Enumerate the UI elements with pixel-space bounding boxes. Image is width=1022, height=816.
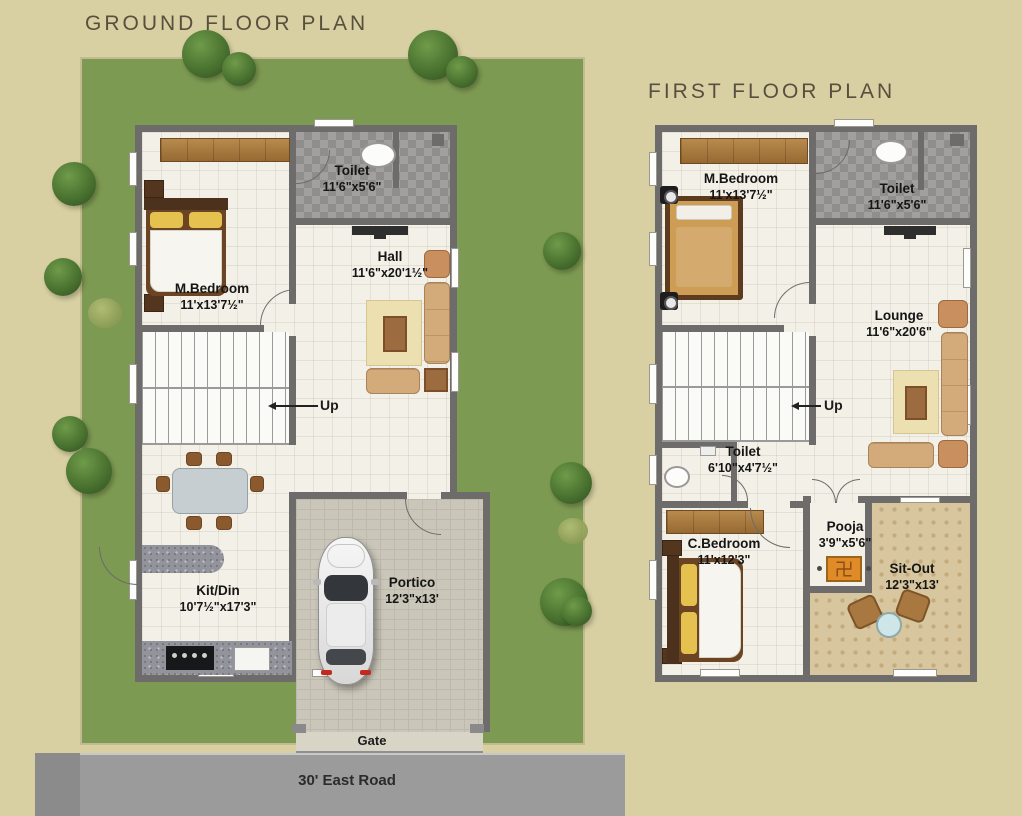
- stair-landing-line: [142, 387, 289, 389]
- wall: [816, 218, 970, 225]
- lamp-dot: [866, 566, 871, 571]
- up-arrow-line: [799, 405, 821, 407]
- bed: [665, 196, 743, 300]
- window: [834, 119, 874, 127]
- wall: [289, 132, 296, 304]
- wall: [858, 496, 872, 503]
- armchair: [938, 300, 968, 328]
- tree-icon: [550, 462, 592, 504]
- up-arrow-line: [276, 405, 318, 407]
- up-arrow-icon: [268, 402, 276, 410]
- floor-plan-canvas: GROUND FLOOR PLAN FIRST FLOOR PLAN: [0, 0, 1022, 816]
- tree-icon: [446, 56, 478, 88]
- room-label-sitout: Sit-Out 12'3"x13': [885, 561, 939, 594]
- window: [451, 352, 459, 392]
- wall: [289, 336, 296, 445]
- up-label: Up: [824, 397, 843, 413]
- window: [649, 560, 657, 600]
- driveway: [296, 732, 483, 753]
- tv-unit: [352, 226, 408, 235]
- armchair: [938, 440, 968, 468]
- lamp-dot: [817, 566, 822, 571]
- coffee-table: [905, 386, 927, 420]
- washbasin: [664, 466, 690, 488]
- tree-icon: [52, 416, 88, 452]
- dining-table: [172, 468, 248, 514]
- window: [649, 152, 657, 186]
- portico-side-wall: [483, 492, 490, 732]
- room-label-mbedroom: M.Bedroom 11'x13'7½": [704, 171, 778, 204]
- nightstand: [662, 540, 682, 556]
- tv-unit: [884, 226, 936, 235]
- swastika-icon: [826, 556, 862, 582]
- kitchen-counter: [142, 545, 224, 573]
- coffee-table: [383, 316, 407, 352]
- gate-post: [470, 724, 484, 733]
- tree-icon: [562, 596, 592, 626]
- side-table: [424, 368, 448, 392]
- gate-label: Gate: [358, 733, 387, 748]
- room-label-cbedroom: C.Bedroom 11'x12'3": [688, 536, 761, 569]
- bed: [667, 556, 747, 664]
- wall: [662, 501, 748, 508]
- wall: [809, 132, 816, 304]
- window: [129, 152, 137, 186]
- up-arrow-icon: [791, 402, 799, 410]
- window: [900, 497, 940, 503]
- stair-landing-line: [662, 386, 809, 388]
- dining-chair: [156, 476, 170, 492]
- car: [318, 537, 374, 685]
- sink: [234, 647, 270, 671]
- window: [700, 669, 740, 677]
- road-label: 30' East Road: [298, 772, 396, 789]
- tree-icon: [52, 162, 96, 206]
- road-culvert: [35, 753, 80, 816]
- tree-icon: [222, 52, 256, 86]
- sofa: [941, 332, 968, 436]
- stove: [166, 646, 214, 670]
- wall: [803, 496, 811, 503]
- window: [129, 232, 137, 266]
- window: [893, 669, 937, 677]
- room-label-portico: Portico 12'3"x13': [385, 575, 439, 608]
- wall: [289, 492, 407, 499]
- tree-icon: [543, 232, 581, 270]
- window: [451, 248, 459, 288]
- duct: [950, 134, 964, 146]
- wall: [662, 325, 784, 332]
- wardrobe: [160, 138, 290, 162]
- room-label-toilet2: Toilet 6'10"x4'7½": [708, 444, 778, 477]
- dining-chair: [250, 476, 264, 492]
- first-floor-title: FIRST FLOOR PLAN: [648, 80, 895, 104]
- window: [129, 364, 137, 404]
- bush-icon: [558, 518, 588, 544]
- dining-chair: [216, 452, 232, 466]
- speaker: [660, 186, 678, 204]
- dining-chair: [186, 452, 202, 466]
- tv-stand: [904, 235, 916, 239]
- nightstand: [144, 180, 164, 198]
- room-label-toilet: Toilet 11'6"x5'6": [868, 181, 927, 214]
- speaker: [660, 292, 678, 310]
- washbasin: [874, 140, 908, 164]
- dining-chair: [186, 516, 202, 530]
- tv-stand: [374, 235, 386, 239]
- wardrobe: [680, 138, 808, 164]
- wall: [142, 325, 264, 332]
- duct: [432, 134, 444, 146]
- sofa: [366, 368, 420, 394]
- window: [963, 248, 971, 288]
- ground-floor-title: GROUND FLOOR PLAN: [85, 12, 368, 36]
- patio-table: [876, 612, 902, 638]
- sofa: [424, 282, 450, 364]
- window: [649, 232, 657, 266]
- wall: [296, 218, 450, 225]
- room-label-kitdin: Kit/Din 10'7½"x17'3": [180, 583, 257, 616]
- room-label-pooja: Pooja 3'9"x5'6": [819, 519, 872, 552]
- bush-icon: [88, 298, 122, 328]
- gate-post: [292, 724, 306, 733]
- window: [314, 119, 354, 127]
- room-label-lounge: Lounge 11'6"x20'6": [866, 308, 932, 341]
- window: [649, 455, 657, 485]
- window: [649, 364, 657, 404]
- tree-icon: [44, 258, 82, 296]
- room-label-toilet: Toilet 11'6"x5'6": [323, 163, 382, 196]
- dining-chair: [216, 516, 232, 530]
- wardrobe: [666, 510, 764, 534]
- sofa: [868, 442, 934, 468]
- room-label-hall: Hall 11'6"x20'1½": [352, 249, 428, 282]
- wall: [809, 336, 816, 445]
- tree-icon: [66, 448, 112, 494]
- wall: [803, 586, 872, 593]
- up-label: Up: [320, 397, 339, 413]
- room-label-mbedroom: M.Bedroom 11'x13'7½": [175, 281, 249, 314]
